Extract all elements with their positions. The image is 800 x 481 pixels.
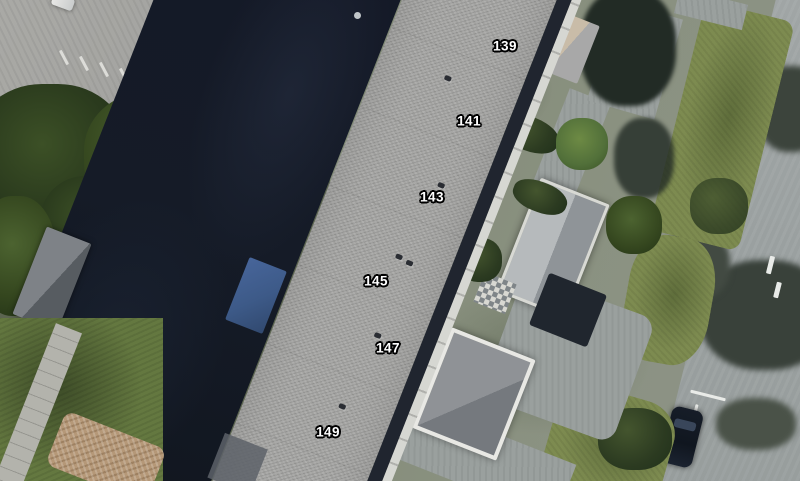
address-label-149[interactable]: 149	[316, 425, 340, 440]
car-windshield	[673, 418, 697, 432]
tree-shadow	[580, 0, 676, 106]
tree	[556, 118, 608, 170]
address-label-139[interactable]: 139	[493, 39, 517, 54]
bright-dot	[354, 12, 361, 19]
address-label-143[interactable]: 143	[420, 190, 444, 205]
tree	[606, 196, 662, 254]
bush	[690, 178, 748, 234]
address-label-147[interactable]: 147	[376, 341, 400, 356]
address-label-141[interactable]: 141	[457, 114, 481, 129]
satellite-map-canvas[interactable]: 139 141 143 145 147 149	[0, 0, 800, 481]
tree-shadow	[614, 118, 674, 198]
tree-shadow-on-road	[716, 398, 796, 450]
address-label-145[interactable]: 145	[364, 274, 388, 289]
